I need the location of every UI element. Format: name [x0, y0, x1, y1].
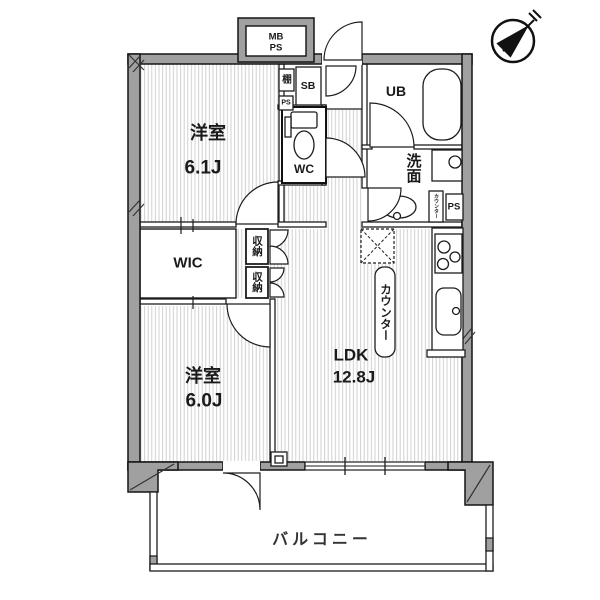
meter-box-label-ps: PS	[270, 43, 283, 54]
meter-box: MB PS	[238, 18, 314, 62]
balcony-label: バルコニー	[272, 531, 372, 549]
wc-label: WC	[294, 162, 314, 176]
bedroom2-size: 6.0J	[186, 391, 223, 412]
storage-lower-label: 収納	[251, 272, 263, 294]
entrance-door-arc	[324, 22, 362, 60]
washing-machine-pan-icon	[432, 150, 462, 181]
ldk-name: LDK	[334, 346, 370, 365]
meter-box-label-mb: MB	[269, 32, 284, 43]
storage-upper-label: 収納	[251, 236, 263, 258]
bathtub-icon	[423, 69, 461, 140]
bedroom2-name: 洋室	[185, 365, 221, 386]
kitchen-counter-label: カウンター	[379, 283, 392, 341]
washroom-label: 洗面	[405, 152, 422, 184]
bedroom1-name: 洋室	[190, 122, 226, 143]
floor-plan: MB PS	[0, 0, 600, 600]
shoe-box-label: SB	[301, 80, 316, 92]
ldk-size: 12.8J	[333, 368, 376, 387]
balcony-door-arc	[223, 473, 260, 510]
kitchen-unit	[427, 228, 465, 357]
ub-label: UB	[386, 83, 406, 99]
wall-equipment-box	[271, 452, 287, 466]
ps-top-label: PS	[281, 100, 291, 107]
bedroom1-size: 6.1J	[185, 158, 222, 179]
refrigerator-space-icon	[361, 229, 394, 263]
wic-label: WIC	[173, 255, 202, 272]
kitchen-sink-icon	[436, 288, 461, 335]
shelf-label: 棚	[282, 74, 292, 86]
north-compass-icon	[492, 10, 541, 62]
washroom-counter-label: カウンター	[433, 193, 439, 219]
ps-washroom-label: PS	[448, 202, 461, 213]
stove-icon	[435, 234, 462, 273]
balcony-door-opening	[223, 461, 260, 471]
